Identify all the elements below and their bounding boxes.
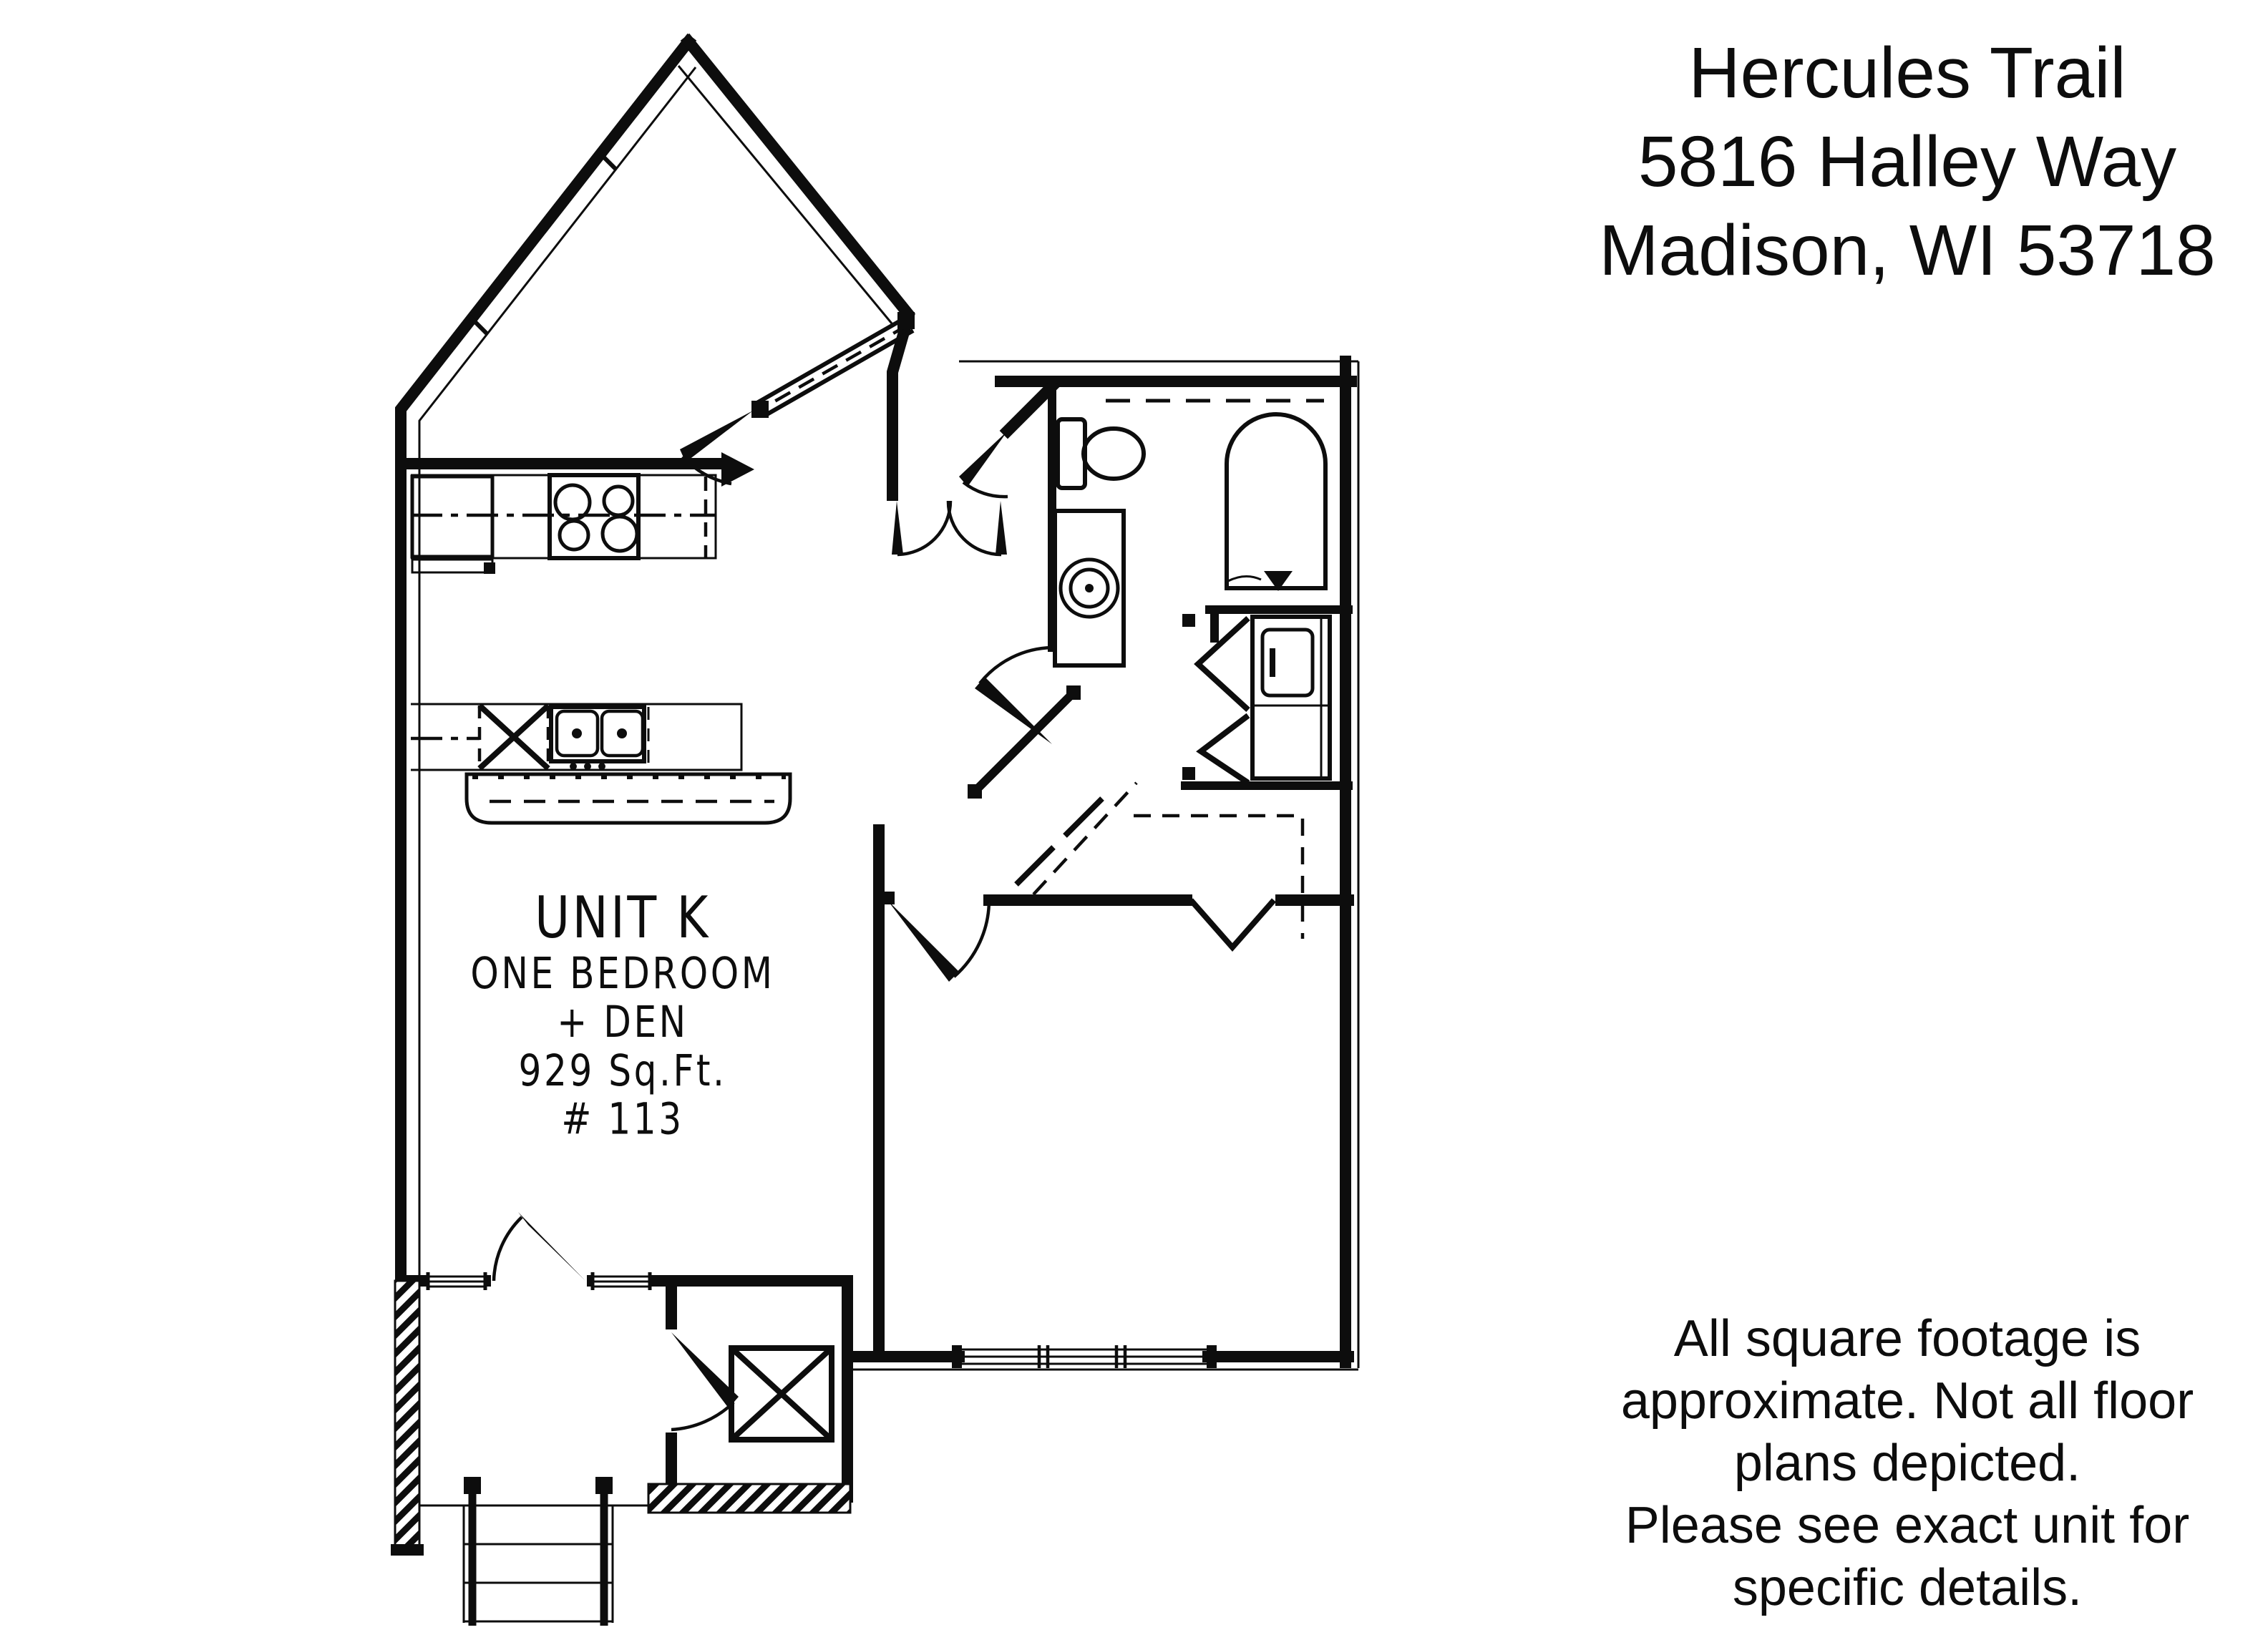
disclaimer-line: All square footage is xyxy=(1510,1308,2268,1370)
entry xyxy=(680,312,1052,555)
stairs xyxy=(464,1477,613,1626)
washer-dryer-stack xyxy=(1252,617,1330,779)
unit-number: # 113 xyxy=(415,1095,831,1144)
toilet xyxy=(1058,419,1144,488)
entry-door-swing xyxy=(680,411,753,462)
bathroom xyxy=(975,381,1348,744)
disclaimer-line: Please see exact unit for xyxy=(1510,1495,2268,1557)
disclaimer-line: plans depicted. xyxy=(1510,1433,2268,1495)
bedroom xyxy=(847,830,1358,1370)
laundry-closet xyxy=(1182,614,1348,786)
disclaimer: All square footage is approximate. Not a… xyxy=(1510,1308,2268,1619)
unit-sqft: 929 Sq.Ft. xyxy=(415,1047,831,1095)
storage-closet xyxy=(648,1281,850,1513)
den-wall xyxy=(401,1212,847,1290)
bedroom-window xyxy=(952,1345,1217,1368)
closet-door-swing xyxy=(671,1332,739,1408)
double-basin-sink xyxy=(551,707,644,770)
kitchen xyxy=(401,452,790,823)
breakfast-bar xyxy=(467,774,790,823)
street-address: 5816 Halley Way xyxy=(1546,117,2268,206)
bifold-door xyxy=(1198,618,1248,710)
city-state-zip: Madison, WI 53718 xyxy=(1546,206,2268,295)
bathtub xyxy=(1227,414,1325,591)
disclaimer-line: specific details. xyxy=(1510,1557,2268,1619)
bedroom-door-swing xyxy=(887,900,959,982)
porch xyxy=(391,1281,850,1626)
porch-hatched-wall xyxy=(395,1281,419,1550)
unit-type-line1: ONE BEDROOM xyxy=(415,950,831,998)
unit-label: UNIT K ONE BEDROOM + DEN 929 Sq.Ft. # 11… xyxy=(415,886,831,1143)
bifold-door xyxy=(1201,716,1248,783)
water-heater xyxy=(731,1348,832,1440)
property-address-header: Hercules Trail 5816 Halley Way Madison, … xyxy=(1546,29,2268,295)
unit-name: UNIT K xyxy=(415,886,831,950)
closet-shelf xyxy=(1134,816,1303,939)
bedroom-closet-bifold xyxy=(1191,900,1274,947)
bathroom-door-swing xyxy=(975,677,1052,744)
dishwasher xyxy=(480,706,548,768)
vanity-sink xyxy=(1055,511,1124,665)
disclaimer-line: approximate. Not all floor xyxy=(1510,1370,2268,1433)
property-name: Hercules Trail xyxy=(1546,29,2268,117)
porch-door-swing xyxy=(518,1212,585,1281)
bathroom-corner-door-swing xyxy=(959,431,1008,487)
closet-bifold xyxy=(1016,799,1102,884)
unit-type-line2: + DEN xyxy=(415,998,831,1047)
